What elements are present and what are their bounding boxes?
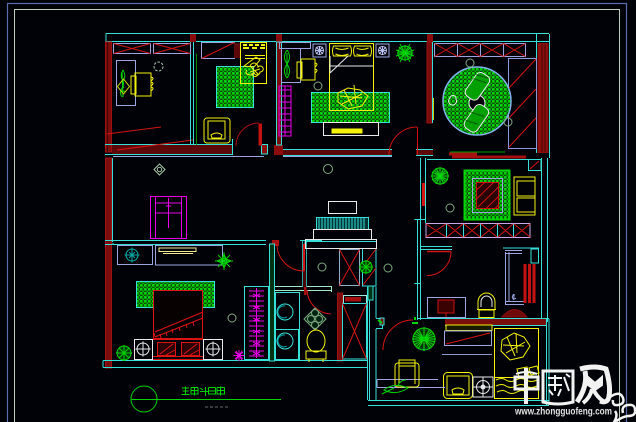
svg-text:www.zhongguofeng.com: www.zhongguofeng.com — [514, 406, 612, 418]
